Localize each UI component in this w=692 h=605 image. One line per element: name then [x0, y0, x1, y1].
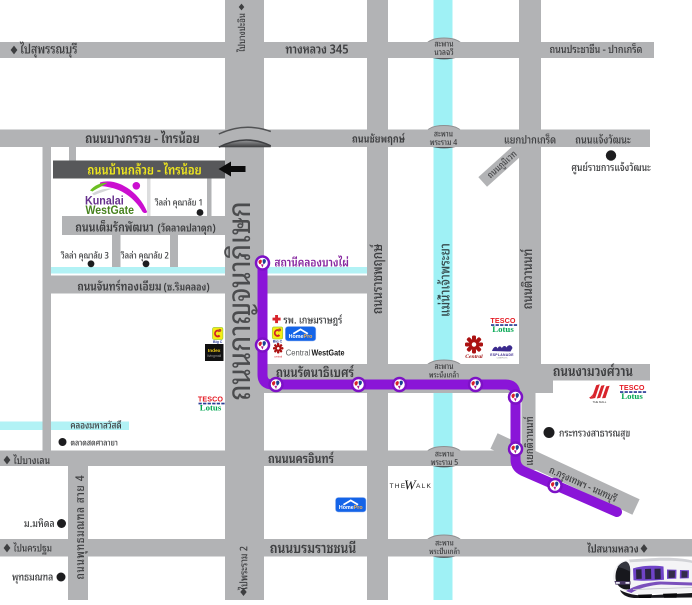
svg-text:Index: Index: [208, 348, 221, 354]
svg-text:WestGate: WestGate: [86, 203, 135, 217]
svg-text:HomePro: HomePro: [289, 334, 313, 340]
svg-text:CINEPLEX: CINEPLEX: [497, 358, 508, 360]
svg-text:Big C: Big C: [213, 340, 223, 344]
svg-text:ESPLANADE: ESPLANADE: [490, 353, 514, 357]
svg-text:Big C: Big C: [273, 339, 283, 343]
svg-text:Central: Central: [286, 347, 311, 357]
svg-text:WestGate: WestGate: [312, 347, 345, 357]
svg-text:central: central: [274, 355, 282, 359]
svg-text:livingmall: livingmall: [207, 354, 221, 358]
svg-text:Lotus: Lotus: [200, 403, 222, 413]
svg-text:Lotus: Lotus: [492, 324, 514, 334]
svg-text:Central: Central: [465, 354, 483, 360]
svg-text:HomePro: HomePro: [339, 505, 363, 511]
svg-text:ALK: ALK: [416, 483, 432, 490]
svg-text:Lotus: Lotus: [621, 391, 643, 401]
svg-text:THE MALL: THE MALL: [593, 400, 607, 404]
